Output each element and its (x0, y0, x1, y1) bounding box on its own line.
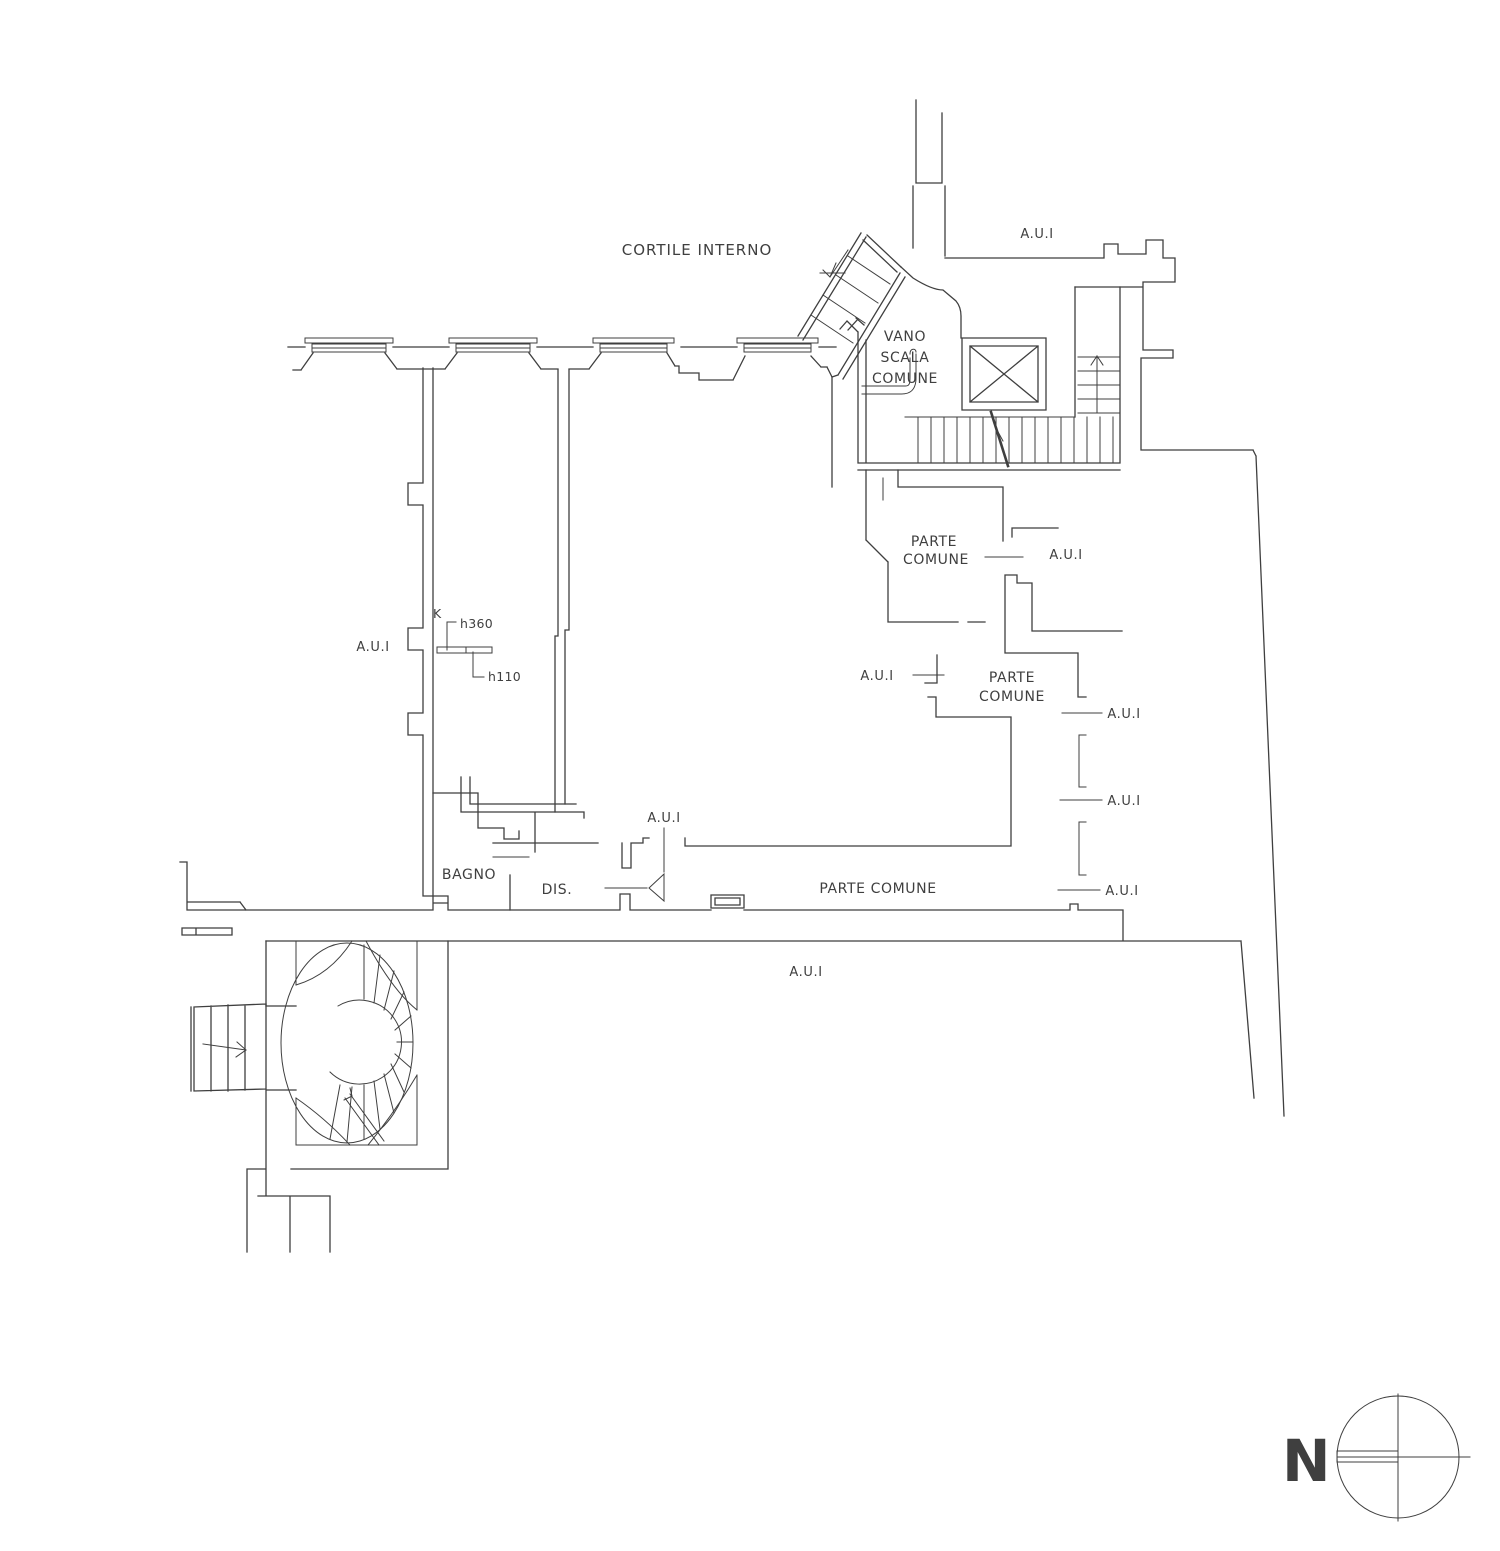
spiral-inner-rail (330, 1000, 401, 1084)
spiral-treads (330, 945, 413, 1142)
common-area-corridor-label: PARTE COMUNE (819, 881, 936, 897)
stairwell-label-2: SCALA (881, 350, 930, 366)
floor-plan-canvas: N CORTILE INTERNO A.U.I VANO SCALA COMUN… (0, 0, 1500, 1551)
unit-label-mid-right: A.U.I (1049, 548, 1082, 563)
courtyard-label: CORTILE INTERNO (622, 241, 773, 259)
unit-label-right-3: A.U.I (1105, 884, 1138, 899)
common-area-1-label-line1: PARTE (911, 534, 957, 550)
unit-label-big-room: A.U.I (789, 965, 822, 980)
unit-label-top: A.U.I (1020, 227, 1053, 242)
interior-partition-wall (555, 370, 569, 812)
north-compass: N (1282, 1394, 1470, 1521)
left-wing-walls (408, 368, 569, 896)
elevator-icon (962, 338, 1046, 410)
kitchen-marker-label: K (433, 606, 442, 621)
door-jamb-brackets (1079, 735, 1086, 875)
common-area-2-label-line1: PARTE (989, 670, 1035, 686)
height-annotation-low: h110 (488, 669, 521, 684)
unit-label-right-1: A.U.I (1107, 707, 1140, 722)
north-label: N (1282, 1427, 1331, 1495)
plan-labels: CORTILE INTERNO A.U.I VANO SCALA COMUNE … (356, 227, 1140, 980)
stairwell-label-1: VANO (884, 329, 926, 345)
facade-wall-lines (288, 347, 836, 487)
door-arrow-icon (649, 828, 664, 901)
unit-label-center: A.U.I (647, 811, 680, 826)
spiral-staircase (191, 941, 448, 1252)
left-long-wall (408, 368, 433, 896)
direction-arrow-icon (820, 250, 848, 277)
corridor-treads (811, 256, 890, 343)
section-arrow (883, 430, 1003, 500)
stair-treads-bottom-flight (905, 417, 1113, 463)
label-leader-dashes (605, 557, 1102, 890)
corridor-walls (180, 862, 1254, 1098)
common-area-walls (605, 470, 1122, 901)
courtyard-wall (288, 338, 836, 487)
unit-label-mid: A.U.I (860, 669, 893, 684)
height-annotation-high: h360 (460, 616, 493, 631)
section-break-line (991, 412, 1008, 466)
floor-plan-page: N CORTILE INTERNO A.U.I VANO SCALA COMUN… (0, 0, 1500, 1551)
stairwell-label-3: COMUNE (872, 371, 938, 387)
common-area-2-label-line2: COMUNE (979, 689, 1045, 705)
hallway-label: DIS. (542, 882, 573, 898)
bathroom-label: BAGNO (442, 867, 496, 883)
window-icon (305, 338, 818, 352)
spiral-room-walls (247, 941, 448, 1252)
unit-label-right-2: A.U.I (1107, 794, 1140, 809)
chimney-shaft (913, 100, 945, 256)
stairwell-walls (840, 267, 1120, 470)
common-area-1-label-line2: COMUNE (903, 552, 969, 568)
unit-label-left: A.U.I (356, 640, 389, 655)
stair-treads-vertical-flight (1078, 357, 1120, 413)
entry-arrow-icon (203, 1042, 246, 1057)
